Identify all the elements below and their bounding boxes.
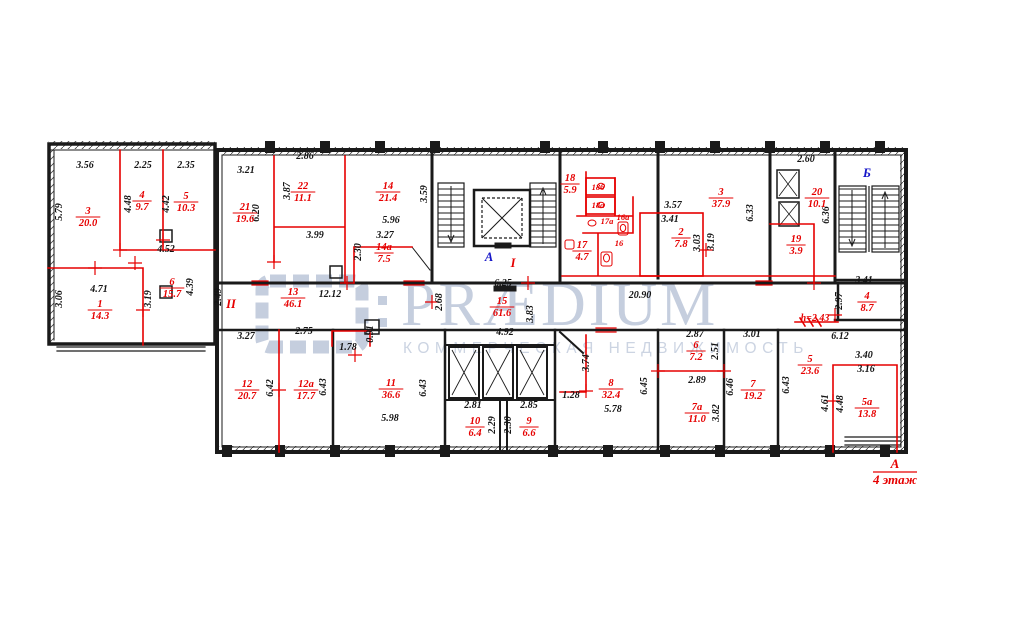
room-number: 5 — [183, 191, 188, 202]
dimension-label: 2.81 — [463, 400, 482, 411]
room-area: 3.9 — [788, 246, 803, 257]
dimension-label: 4.42 — [161, 195, 172, 214]
room-area: 9.7 — [135, 202, 149, 213]
annex-steps — [57, 347, 205, 351]
dimension-label: 2.68 — [434, 293, 445, 312]
dimension-label: 2.87 — [685, 329, 705, 340]
room-label: 193.9 — [786, 234, 805, 257]
room-area: 13.8 — [858, 409, 877, 420]
room-number: 1 — [97, 299, 102, 310]
room-area: 11.0 — [688, 414, 707, 425]
dimension-label: 4.71 — [89, 284, 108, 295]
dimension-label: 3.41 — [854, 275, 873, 286]
dimension-label: 3.40 — [854, 350, 873, 361]
watermark-logo — [262, 281, 362, 347]
room-label: 49.7 — [132, 190, 151, 213]
room-number: 10 — [470, 416, 481, 427]
room-number: 7а — [692, 402, 703, 413]
dimension-label: 3.19 — [143, 290, 154, 309]
room-label: 1136.6 — [379, 378, 404, 401]
room-area: 19.6 — [236, 214, 255, 225]
dimension-label: 2.89 — [687, 375, 706, 386]
dimension-label: 5.79 — [54, 203, 65, 221]
room-label: 523.6 — [798, 354, 823, 377]
dimension-label: 3.19 — [706, 233, 717, 252]
annex-outline — [49, 144, 215, 344]
sink-icon — [565, 240, 574, 249]
room-number: 20 — [811, 187, 823, 198]
room-area: 36.6 — [381, 390, 401, 401]
room-label-small: 17а — [601, 216, 615, 226]
room-number: 19 — [791, 234, 802, 245]
room-number: 6 — [693, 340, 699, 351]
dimension-label: 3.82 — [711, 404, 722, 423]
room-number: 8 — [608, 378, 614, 389]
room-label: 12а17.7 — [294, 379, 319, 402]
dimension-label: 2.25 — [133, 160, 152, 171]
dimension-label: 3.74 — [581, 354, 592, 373]
dimension-label: 6.12 — [831, 331, 849, 342]
room-label: 48.7 — [857, 291, 876, 314]
dimension-label: 3.87 — [282, 181, 293, 201]
dimension-label: 3.21 — [236, 165, 255, 176]
room-number: 7 — [750, 379, 756, 390]
dimension-label: 2.49 — [213, 288, 224, 307]
dimension-label: 2.51 — [710, 342, 721, 361]
dimension-label: 6.45 — [639, 377, 650, 395]
room-area: 17.7 — [297, 391, 316, 402]
dimension-label: 4.61 — [820, 394, 831, 413]
dimension-label: 20.90 — [628, 290, 652, 301]
dimension-label: 3.06 — [54, 290, 65, 309]
room-area: 46.1 — [283, 299, 302, 310]
dimension-label: 4.48 — [835, 395, 846, 414]
room-number: 12а — [298, 379, 314, 390]
dimension-label: 3.27 — [375, 230, 395, 241]
dimension-label: 3.41 — [660, 214, 679, 225]
room-label-small: 16а — [617, 212, 631, 222]
room-label: 174.7 — [572, 240, 591, 263]
dimension-label: 6.25 — [494, 278, 512, 289]
dimension-label: 2.30 — [353, 243, 364, 262]
room-number: 15 — [497, 296, 508, 307]
dimension-label: 3.99 — [305, 230, 324, 241]
dimension-label: 3.01 — [742, 329, 761, 340]
room-area: 7.8 — [674, 239, 688, 250]
room-label: 96.6 — [519, 416, 538, 439]
room-number: 2 — [677, 227, 684, 238]
dimension-label: 4.92 — [495, 327, 514, 338]
dimension-label: 2.86 — [295, 151, 314, 162]
room-area: 15.7 — [163, 289, 182, 300]
dimension-label: 3.59 — [419, 185, 430, 204]
room-label: 719.2 — [741, 379, 766, 402]
dimension-label: 6.43 — [418, 379, 429, 397]
room-number: 9 — [526, 416, 532, 427]
room-area: 14.3 — [91, 311, 109, 322]
room-number: 17 — [577, 240, 588, 251]
dimension-label: 3.56 — [75, 160, 94, 171]
room-label: 1346.1 — [281, 287, 306, 310]
dimension-label: 2.29 — [487, 416, 498, 435]
dimension-label: 4.39 — [185, 278, 196, 297]
sink-icon — [588, 220, 596, 226]
room-label: 1220.7 — [235, 379, 260, 402]
dimension-label: 1.78 — [339, 342, 357, 353]
room-area: 23.6 — [800, 366, 820, 377]
room-label: 114.3 — [88, 299, 113, 322]
room-number: 14 — [383, 181, 394, 192]
room-area: 20.7 — [237, 391, 257, 402]
watermark-colon-dot — [378, 296, 387, 305]
dimension-label: 6.46 — [725, 378, 736, 396]
dimension-label: 5.98 — [381, 413, 399, 424]
room-number: 12 — [242, 379, 253, 390]
room-label: 337.9 — [709, 187, 734, 210]
room-area: 61.6 — [493, 308, 512, 319]
room-number: 14а — [376, 242, 392, 253]
room-label-small: 16 — [615, 238, 624, 248]
room-number: 13 — [288, 287, 299, 298]
stair-core-a — [432, 150, 560, 291]
dimension-label: 2.35 — [176, 160, 195, 171]
room-area: 7.2 — [689, 352, 703, 363]
dimension-label: 2.30 — [503, 416, 514, 435]
room-number: 5а — [862, 397, 873, 408]
floor-plan: PRÆDIUM КОММЕРЧЕСКАЯ НЕДВИЖИМОСТЬ — [0, 0, 1024, 634]
room-label: 2211.1 — [291, 181, 316, 204]
dimension-label: 2.60 — [796, 154, 815, 165]
room-area: 10.3 — [177, 203, 195, 214]
dimension-label: 0.91 — [365, 325, 376, 343]
room-area: 21.4 — [378, 193, 397, 204]
room-label: 14а7.5 — [374, 242, 393, 265]
room-number: 3 — [717, 187, 723, 198]
dimension-label: 3.57 — [663, 200, 683, 211]
room-number: 4 — [863, 291, 869, 302]
room-area: 6.6 — [522, 428, 536, 439]
room-number: 6 — [169, 277, 175, 288]
room-number: 4 — [138, 190, 144, 201]
room-area: 10.1 — [808, 199, 826, 210]
dimension-label: 3.03 — [692, 234, 703, 253]
dimension-label: 6.43 — [318, 378, 329, 396]
room-label: 5а13.8 — [855, 397, 880, 420]
dimension-label: 1.28 — [562, 390, 580, 401]
room-area: 8.7 — [860, 303, 874, 314]
exterior-steps — [845, 437, 900, 445]
dimension-label: 5.96 — [382, 215, 400, 226]
room-label: 7а11.0 — [685, 402, 710, 425]
stair-axis-marker: А — [484, 250, 493, 264]
floor-plan-page: PRÆDIUM КОММЕРЧЕСКАЯ НЕДВИЖИМОСТЬ — [0, 0, 1024, 634]
room-number: 11 — [386, 378, 396, 389]
title-axis: А — [890, 456, 900, 471]
dimension-label: 5.78 — [604, 404, 622, 415]
room-number: 18 — [565, 173, 576, 184]
dimension-label: 3.27 — [236, 331, 256, 342]
room-label: 615.7 — [160, 277, 185, 300]
room-label: 2010.1 — [805, 187, 830, 210]
section-marker: I — [510, 256, 517, 270]
room-label-small: 18б — [592, 182, 606, 192]
title-floor: 4 этаж — [872, 472, 918, 487]
dimension-label: 6.43 — [781, 376, 792, 394]
room-label: 1421.4 — [376, 181, 401, 204]
room-area: 5.9 — [563, 185, 577, 196]
room-label: 185.9 — [560, 173, 579, 196]
dimension-label: 2.97 — [834, 291, 845, 311]
dimension-label: 6.42 — [265, 379, 276, 397]
room-label-small: 18а — [592, 200, 606, 210]
room-label: 27.8 — [671, 227, 690, 250]
room-label: 832.4 — [599, 378, 624, 401]
dimension-label: 2.85 — [519, 400, 538, 411]
dimension-label: h=2.43 — [801, 313, 830, 324]
room-area: 7.5 — [377, 254, 390, 265]
room-area: 32.4 — [601, 390, 620, 401]
dimension-label: 4.48 — [123, 195, 134, 214]
room-area: 6.4 — [468, 428, 481, 439]
dimension-label: 12.12 — [319, 289, 342, 300]
dimension-label: 4.52 — [156, 244, 175, 255]
room-area: 4.7 — [574, 252, 589, 263]
dimension-label: 3.16 — [856, 364, 875, 375]
room-area: 19.2 — [744, 391, 763, 402]
room-label: 106.4 — [465, 416, 484, 439]
watermark-subtitle: КОММЕРЧЕСКАЯ НЕДВИЖИМОСТЬ — [403, 340, 809, 357]
room-number: 21 — [239, 202, 251, 213]
section-marker: II — [225, 297, 237, 311]
room-number: 22 — [297, 181, 309, 192]
room-area: 20.0 — [78, 218, 98, 229]
room-label: 510.3 — [174, 191, 199, 214]
dimension-label: 2.75 — [294, 326, 313, 337]
stair-axis-marker: Б — [862, 166, 871, 180]
room-label: 320.0 — [76, 206, 101, 229]
room-number: 3 — [84, 206, 90, 217]
dimension-label: 6.33 — [745, 204, 756, 222]
title-block: А 4 этаж — [872, 456, 918, 487]
room-number: 5 — [807, 354, 812, 365]
room-area: 11.1 — [294, 193, 312, 204]
room-area: 37.9 — [711, 199, 731, 210]
dimension-label: 3.83 — [525, 305, 536, 324]
